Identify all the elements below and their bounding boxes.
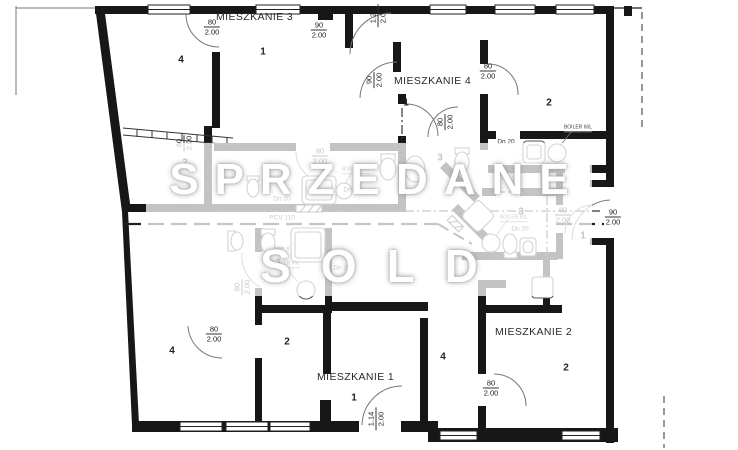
room-number: 2 xyxy=(563,363,569,374)
room-number: 2 xyxy=(546,98,552,109)
dimension-label: 902.00 xyxy=(605,208,621,227)
dimension-label: 802.00 xyxy=(204,18,220,37)
room-number: 4 xyxy=(440,352,446,363)
dimension-label: 802.00 xyxy=(483,379,499,398)
room-number: 2 xyxy=(284,337,290,348)
dimension-label: 902.00 xyxy=(311,21,327,40)
dimension-label: 802.00 xyxy=(480,62,496,81)
room-number: 1 xyxy=(403,98,409,109)
watermark-text-polish: SPRZEDANE xyxy=(146,155,592,205)
floor-plan: MIESZKANIE 3 MIESZKANIE 4 MIESZKANIE 1 M… xyxy=(0,0,738,450)
apartment-label-4: MIESZKANIE 4 xyxy=(394,75,471,87)
room-number: 1 xyxy=(351,393,357,404)
dimension-label: 902.00 xyxy=(365,72,384,88)
apartment-label-2: MIESZKANIE 2 xyxy=(495,326,572,338)
dimension-label: 1.142.00 xyxy=(367,408,386,431)
room-number: 4 xyxy=(178,55,184,66)
room-number: 1 xyxy=(260,47,266,58)
apartment-label-3: MIESZKANIE 3 xyxy=(216,11,293,23)
dimension-label: 802.00 xyxy=(206,325,222,344)
sold-watermark: SPRZEDANE SOLD xyxy=(146,143,592,296)
watermark-text-english: SOLD xyxy=(146,239,592,293)
dimension-label: 802.00 xyxy=(436,114,455,130)
room-number: 4 xyxy=(169,346,175,357)
dimension-label: 1.202.00 xyxy=(369,5,388,28)
apartment-label-1: MIESZKANIE 1 xyxy=(317,371,394,383)
boiler-label: BOILER 60L xyxy=(564,124,592,132)
